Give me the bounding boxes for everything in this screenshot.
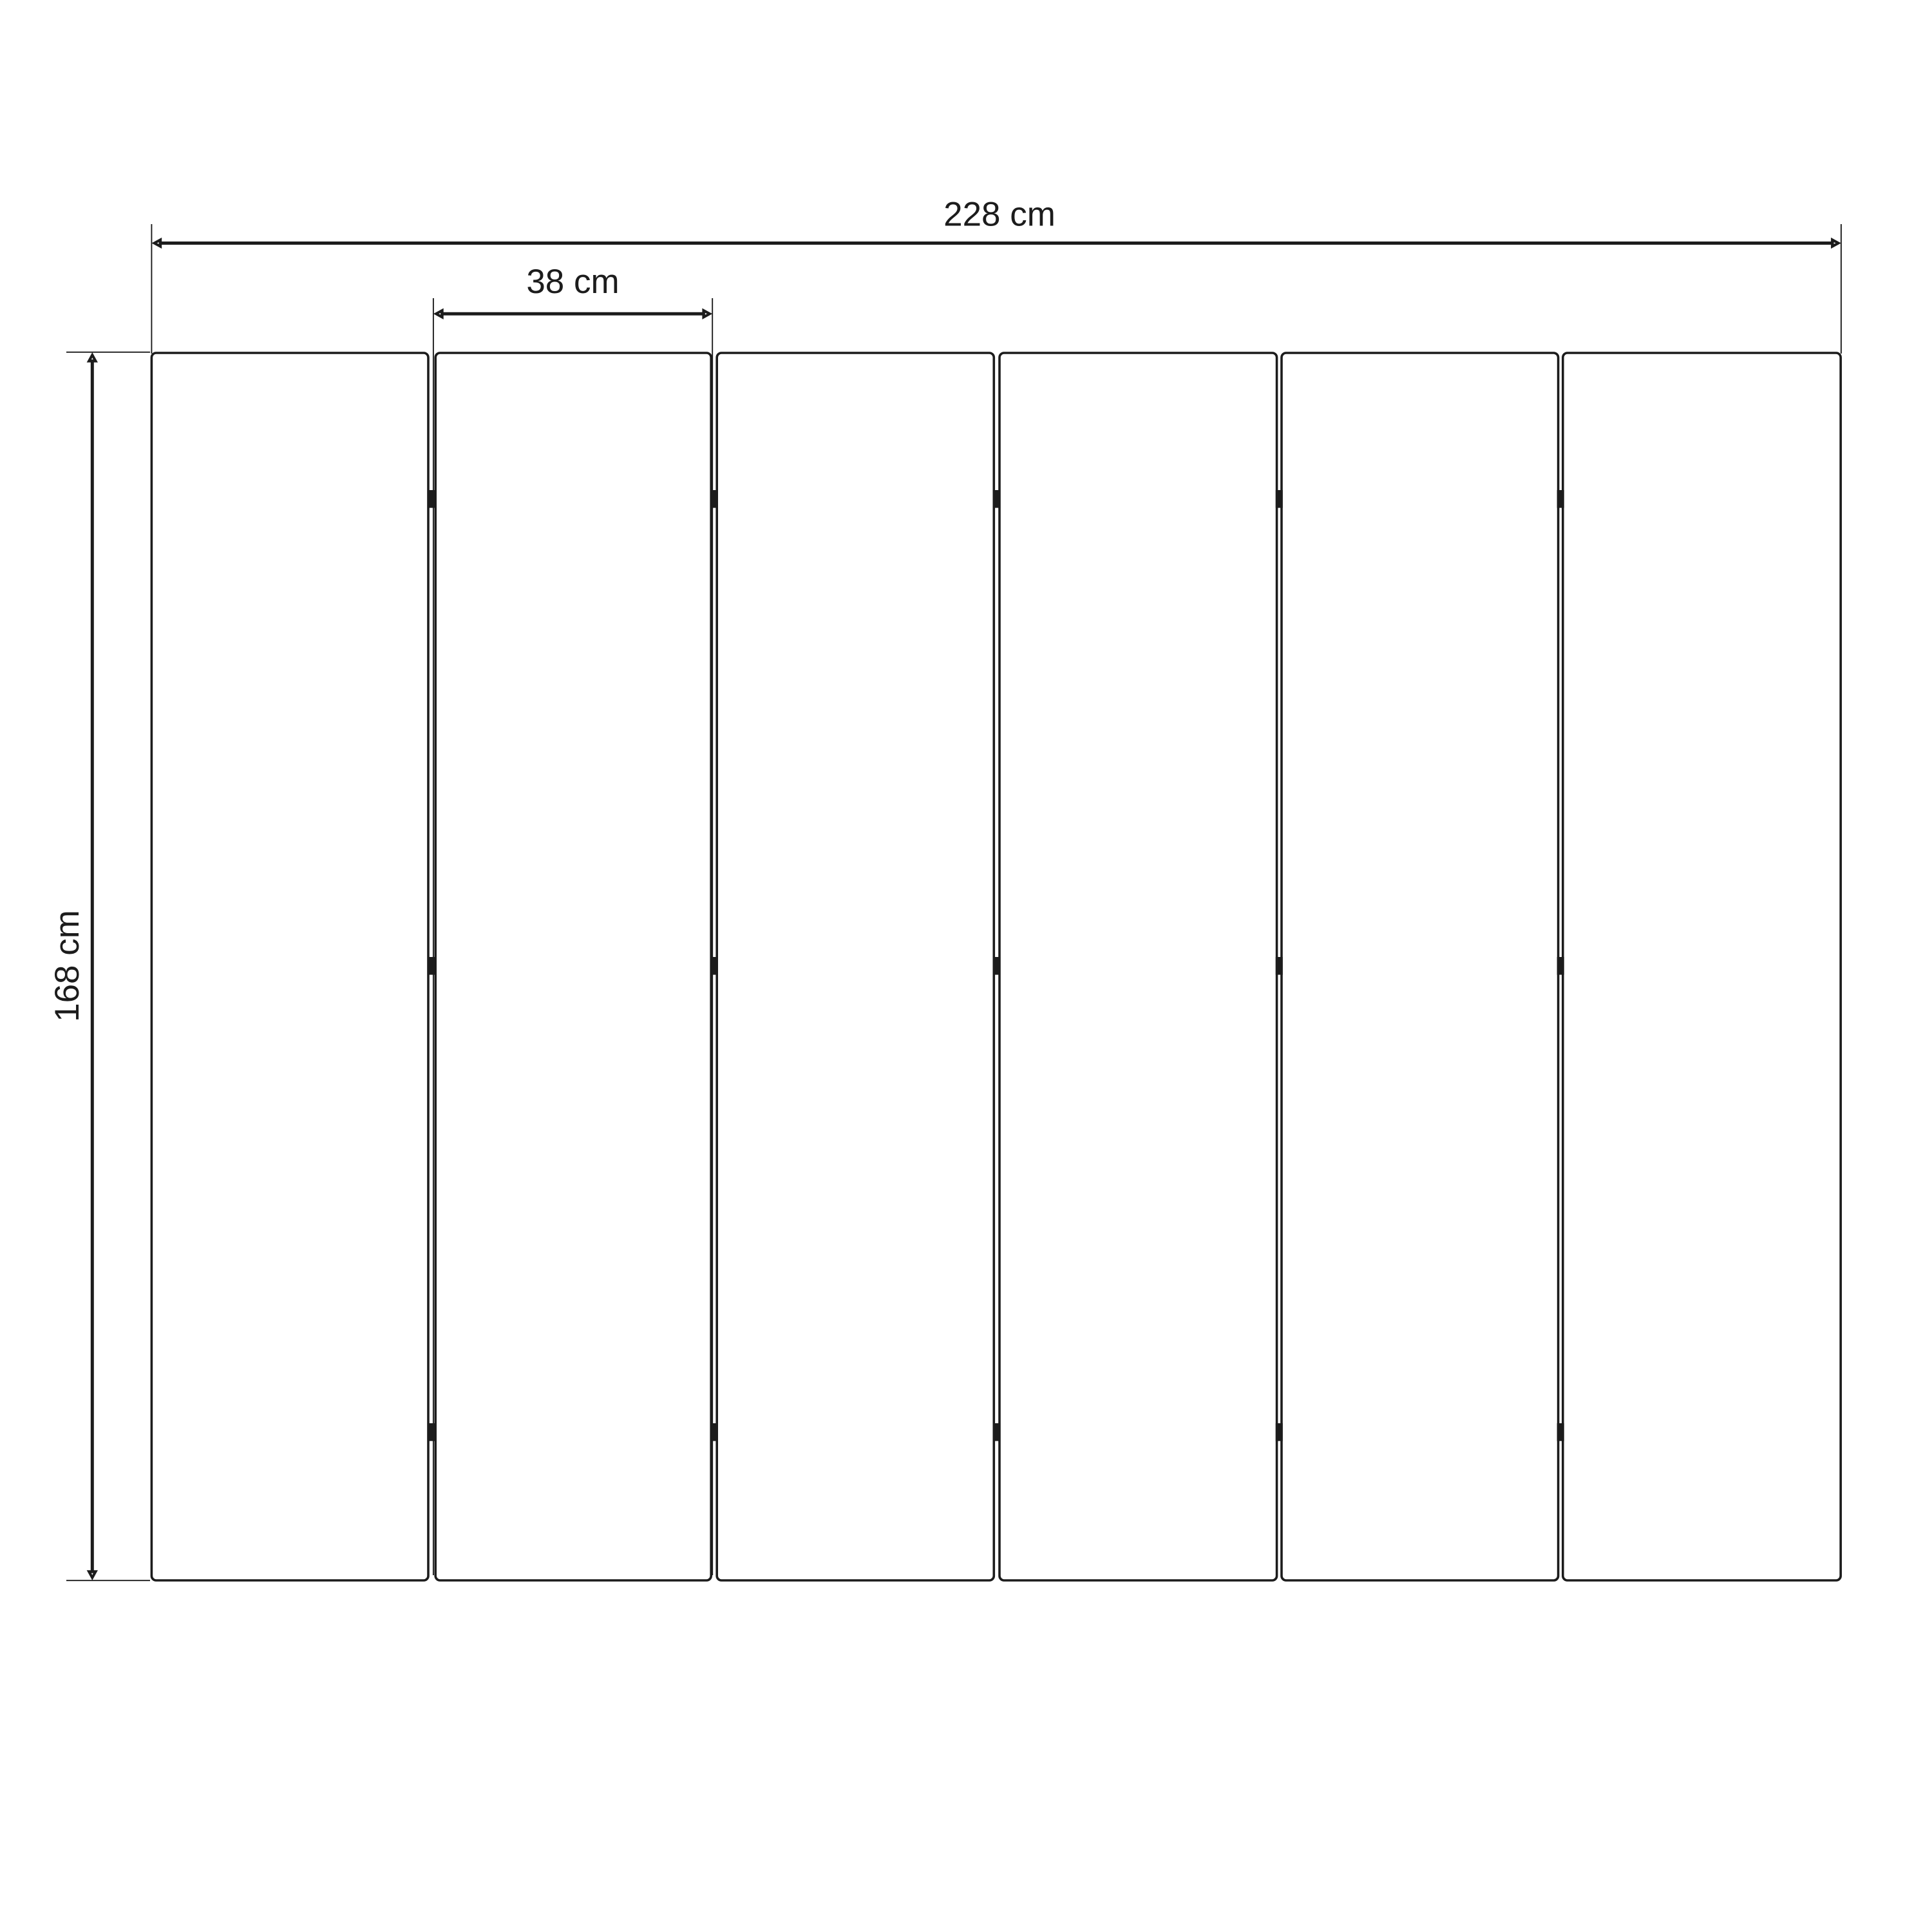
svg-text:228 cm: 228 cm: [943, 196, 1056, 234]
svg-text:38 cm: 38 cm: [526, 263, 619, 301]
svg-text:168 cm: 168 cm: [48, 910, 86, 1022]
